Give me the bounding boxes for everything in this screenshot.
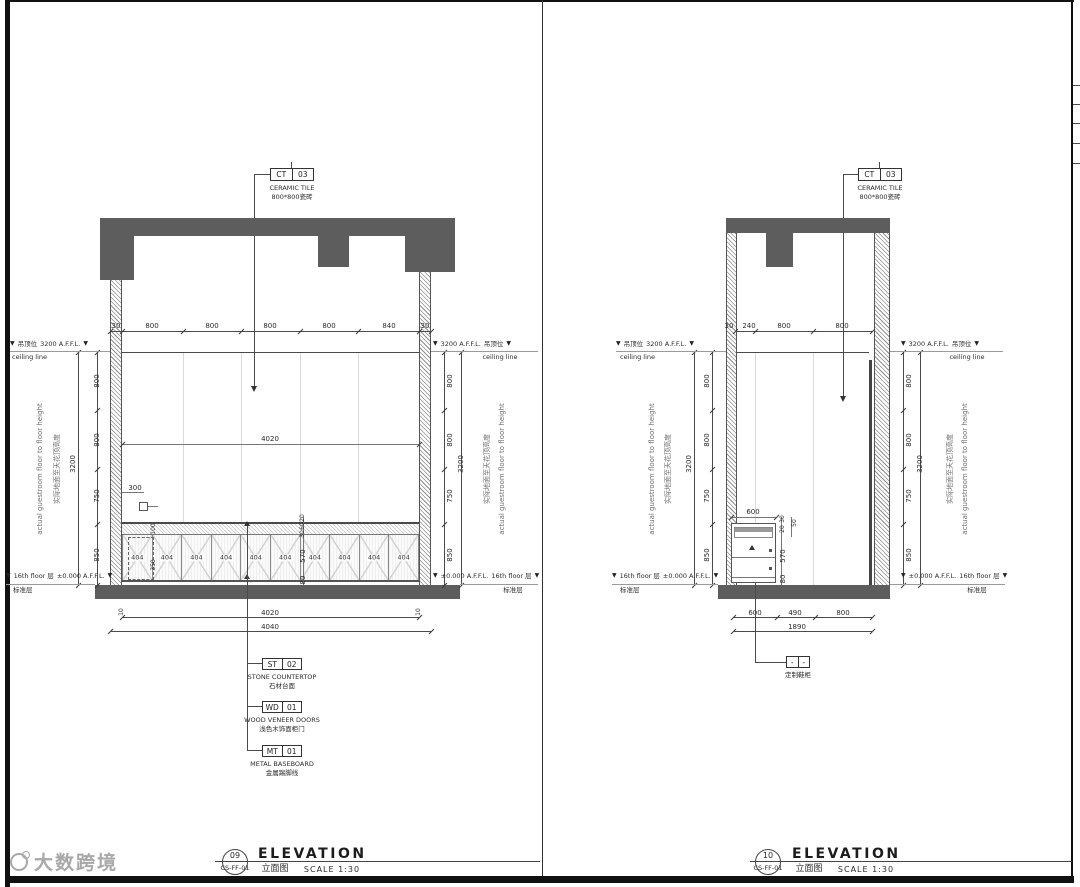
ceiling-line	[737, 352, 869, 353]
dim-line-overall-left	[694, 352, 695, 585]
dim-label: 240	[739, 322, 759, 330]
dim-label: 800	[703, 366, 711, 396]
tag-cn: 定制鞋柜	[777, 671, 819, 679]
floor-cn-label: 标准层	[962, 586, 992, 594]
level-marker-icon: ▼	[714, 572, 719, 580]
dim-label: 750	[905, 481, 913, 511]
material-name: CERAMIC TILE	[836, 184, 924, 192]
callout-leader	[843, 174, 858, 175]
door-frame-edge	[869, 360, 872, 585]
shoe-cabinet	[731, 523, 776, 583]
niche-dim: 100	[150, 521, 158, 537]
level-line	[890, 351, 1003, 352]
floor-level: ±0.000 A.F.F.L.	[909, 572, 957, 580]
dim-label: 490	[781, 609, 809, 617]
custom-cabinet-tag: --	[786, 656, 810, 668]
cabinet-width-dim-line	[731, 517, 776, 518]
cabinet-niche	[734, 527, 773, 538]
tag-num: -	[798, 657, 810, 667]
ceiling-level: 3200 A.F.F.L.	[909, 340, 949, 348]
cabinet-dim: 80	[779, 571, 787, 587]
material-tag-ct03: CT03	[858, 168, 902, 181]
level-line	[612, 584, 718, 585]
dim-label: 750	[703, 481, 711, 511]
ceiling-line-label: ceiling line	[620, 353, 664, 361]
side-note-en: actual guestroom floor to floor height	[961, 369, 969, 569]
dim-label: 800	[823, 322, 861, 330]
cabinet-kick-line	[732, 577, 775, 578]
drawing-title-cn: 立面图	[792, 865, 826, 873]
floor-marker-left: ▼ 16th floor 层 ±0.000 A.F.F.L. ▼	[612, 572, 718, 580]
floor-en: 16th floor 层	[620, 572, 660, 580]
tag-leader	[247, 526, 248, 751]
dim-line-bottom-inner	[733, 617, 872, 618]
door-handle	[769, 567, 772, 570]
dim-label: 800	[703, 425, 711, 455]
watermark: 大数跨境	[10, 848, 118, 875]
dim-label-overall: 3200	[685, 449, 693, 479]
level-marker-icon: ▼	[901, 572, 906, 580]
cabinet-shelf-line	[732, 557, 775, 558]
drawing-sheet: 大数跨境 CT03 CERAMIC TILE 800*800瓷砖	[0, 0, 1080, 887]
door-handle	[769, 549, 772, 552]
floor-marker-right: ▼ ±0.000 A.F.F.L. 16th floor 层 ▼	[901, 572, 1007, 580]
dim-label-overall: 1890	[782, 623, 812, 631]
drawing-ref: CS-FF-01	[745, 864, 791, 872]
side-note-cn: 实际地面至天花顶高度	[946, 369, 954, 569]
level-marker-icon: ▼	[689, 340, 694, 348]
ceiling-level: 3200 A.F.F.L.	[646, 340, 686, 348]
ceiling-beam	[726, 218, 890, 233]
tag-code: -	[787, 657, 798, 667]
tag-leader-h	[755, 662, 786, 663]
level-line	[890, 584, 1005, 585]
drawing-title: ELEVATION	[792, 847, 901, 861]
floor-en: 16th floor 层	[959, 572, 999, 580]
cabinet-dim: 570	[779, 547, 787, 565]
ceiling-marker-right: ▼ 3200 A.F.F.L. 吊顶位 ▼	[901, 340, 979, 348]
level-line	[616, 351, 726, 352]
side-note-en: actual guestroom floor to floor height	[648, 369, 656, 569]
cabinet-width-dim: 600	[738, 508, 768, 516]
dim-label: 800	[905, 366, 913, 396]
dim-label: 800	[828, 609, 858, 617]
tag-leader	[755, 583, 756, 662]
dim-label: 850	[905, 540, 913, 570]
callout-leader-v	[843, 174, 844, 396]
dim-label: 800	[905, 425, 913, 455]
level-marker-icon: ▼	[612, 572, 617, 580]
cabinet-dim: 50	[791, 515, 799, 531]
ceiling-line-label: ceiling line	[945, 353, 989, 361]
dim-line-bottom-overall	[733, 631, 872, 632]
wall-section-right	[874, 233, 890, 585]
dim-label: 30	[722, 322, 736, 330]
niche-dim: 350	[150, 557, 158, 573]
down-arrow-icon	[840, 396, 846, 402]
ceiling-cn: 吊顶位	[952, 340, 972, 348]
beam-stub	[766, 233, 793, 267]
drawing-number: 10	[755, 852, 781, 860]
cabinet-dim: 20	[779, 521, 787, 537]
ceiling-marker-left: ▼ 吊顶位 3200 A.F.F.L. ▼	[616, 340, 694, 348]
ceiling-cn: 吊顶位	[624, 340, 644, 348]
floor-cn-label: 标准层	[620, 586, 650, 594]
level-marker-icon: ▼	[974, 340, 979, 348]
up-arrow-icon	[749, 545, 755, 550]
tag-num: 03	[880, 169, 902, 180]
side-note-cn: 实际地面至天花顶高度	[664, 369, 672, 569]
floor-level: ±0.000 A.F.F.L.	[663, 572, 711, 580]
floor-slab	[718, 585, 890, 599]
dim-label: 850	[703, 540, 711, 570]
tag-code: CT	[859, 169, 880, 180]
material-cn: 800*800瓷砖	[836, 193, 924, 201]
dim-label: 800	[765, 322, 803, 330]
drawing-scale: SCALE 1:30	[834, 866, 898, 874]
level-marker-icon: ▼	[1003, 572, 1008, 580]
elevation-10: CT03 CERAMIC TILE 800*800瓷砖 30 240 800 8…	[0, 0, 1080, 887]
level-marker-icon: ▼	[616, 340, 621, 348]
dim-label-overall: 3200	[916, 449, 924, 479]
watermark-brand: 大数跨境	[34, 848, 118, 875]
watermark-logo-icon	[10, 853, 28, 871]
level-marker-icon: ▼	[901, 340, 906, 348]
